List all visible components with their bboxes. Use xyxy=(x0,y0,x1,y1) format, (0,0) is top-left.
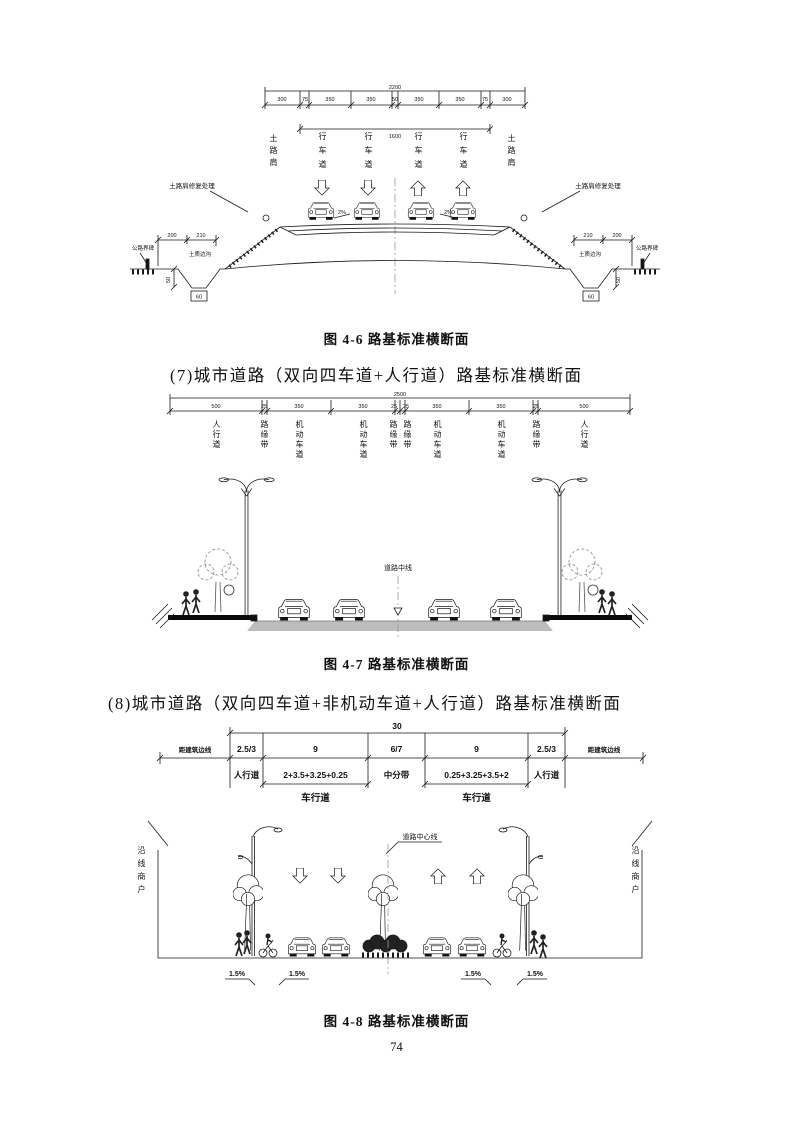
label-roadside-shops: 沿线商户 xyxy=(136,846,147,898)
median-bushes xyxy=(362,935,412,955)
pedestrian-icon xyxy=(530,931,538,954)
traffic-arrows xyxy=(315,180,470,196)
label-lane: 行车道 xyxy=(413,132,424,174)
dim-label: 25 xyxy=(391,404,397,410)
label-shoulder: 土路肩 xyxy=(506,134,517,170)
figure-4-7: 2500 500 25 350 350 25 25 350 350 25 500 xyxy=(140,388,660,646)
slope-label: 1.5% xyxy=(527,971,544,978)
row-label: 人行道 xyxy=(234,770,260,780)
label-roadside-shops: 沿线商户 xyxy=(630,846,641,898)
dim-label: 350 xyxy=(325,97,334,103)
page-number: 74 xyxy=(0,1040,793,1055)
row-label: 中分带 xyxy=(384,770,410,780)
tree-icon xyxy=(562,549,602,612)
car-icon xyxy=(334,599,365,620)
car-icon xyxy=(423,938,450,956)
centerline-label: 道路中线 xyxy=(384,563,412,572)
arrow-down-icon xyxy=(331,868,345,883)
ditch-dim: 210 xyxy=(583,233,592,239)
boundary-lines xyxy=(148,821,652,958)
dim-label: 300 xyxy=(502,97,511,103)
arrow-up-icon xyxy=(431,869,445,884)
dimension-table: 30 距建筑边线 2.5/3 9 6/7 9 2.5/3 距建筑边线 人行道 2… xyxy=(157,721,646,804)
dim-inner: 1600 xyxy=(389,134,401,140)
cyclist-icon xyxy=(259,934,277,957)
dim-label: 350 xyxy=(294,404,303,410)
label-lane: 行车道 xyxy=(458,132,469,174)
figure-4-8: 30 距建筑边线 2.5/3 9 6/7 9 2.5/3 距建筑边线 人行道 2… xyxy=(130,718,670,1010)
car-icon xyxy=(354,202,380,219)
figure-caption: 图 4-7 路基标准横断面 xyxy=(0,653,793,673)
ditch-width: 60 xyxy=(196,295,202,301)
car-icon xyxy=(450,202,476,219)
dimension-band: 2200 300 75 350 350 50 350 350 75 300 16… xyxy=(262,85,528,140)
car-icon xyxy=(288,938,315,956)
label-curb-strip: 路缘带 xyxy=(531,420,542,450)
arrow-down-icon xyxy=(315,180,329,195)
dim-label: 500 xyxy=(579,404,588,410)
slope-note: 土路肩修复处理 xyxy=(169,181,215,190)
slope-label: 1.5% xyxy=(229,971,246,978)
label-lane: 行车道 xyxy=(317,132,328,174)
dim-label: 25 xyxy=(533,404,539,410)
label-motor-lane: 机动车道 xyxy=(496,420,507,460)
carriageway-label: 车行道 xyxy=(301,792,330,804)
ditch-dim: 210 xyxy=(196,233,205,239)
pedestrian-icon xyxy=(598,590,606,613)
label-sidewalk: 人行道 xyxy=(579,420,590,450)
label-curb-strip: 路缘带 xyxy=(388,420,399,450)
pedestrian-icon xyxy=(182,592,190,615)
pedestrian-icon xyxy=(608,592,616,615)
tree-icon xyxy=(198,549,238,612)
dim-label: 350 xyxy=(414,97,423,103)
row-label: 2+3.5+3.25+0.25 xyxy=(283,770,348,780)
label-curb-strip: 路缘带 xyxy=(402,420,413,450)
dim-label: 500 xyxy=(211,404,220,410)
boundary-note: 公路界碑 xyxy=(132,244,155,252)
arrow-down-icon xyxy=(361,180,375,195)
cyclist-icon xyxy=(493,934,511,957)
car-icon xyxy=(429,599,460,620)
centerline-label: 道路中心线 xyxy=(403,832,438,841)
pedestrian-icon xyxy=(243,931,251,954)
row-label: 人行道 xyxy=(534,770,560,780)
slope-label: 1.5% xyxy=(465,971,482,978)
label-curb-strip: 路缘带 xyxy=(259,420,270,450)
dim-label: 75 xyxy=(302,97,308,103)
dim-label: 350 xyxy=(432,404,441,410)
carriageway-label: 车行道 xyxy=(462,792,491,804)
slope-label: 1.5% xyxy=(289,971,306,978)
dim-label: 9 xyxy=(474,744,479,754)
label-sidewalk: 人行道 xyxy=(211,420,222,450)
ditch-depth: 50 xyxy=(616,277,622,283)
ditch-dim: 200 xyxy=(612,233,621,239)
arrow-up-icon xyxy=(470,869,484,884)
label-motor-lane: 机动车道 xyxy=(432,420,443,460)
dim-label: 6/7 xyxy=(391,744,403,754)
car-icon xyxy=(308,202,334,219)
boundary-note: 公路界碑 xyxy=(636,244,659,252)
ditch-dim: 200 xyxy=(167,233,176,239)
street-lamp-icon xyxy=(532,478,587,616)
fig-4-6-drawing: 2200 300 75 350 350 50 350 350 75 300 16… xyxy=(130,82,665,322)
slope-note: 土路肩修复处理 xyxy=(575,181,621,190)
ditch-depth: 50 xyxy=(166,277,172,283)
arrow-down-icon xyxy=(293,868,307,883)
section-heading-8: (8)城市道路（双向四车道+非机动车道+人行道）路基标准横断面 xyxy=(108,690,621,714)
document-page: 2200 300 75 350 350 50 350 350 75 300 16… xyxy=(0,0,793,1122)
pedestrian-icon xyxy=(539,935,547,958)
street-lamp-icon xyxy=(219,478,274,616)
dim-label: 9 xyxy=(313,744,318,754)
dim-total: 30 xyxy=(392,721,402,731)
figure-caption: 图 4-6 路基标准横断面 xyxy=(0,328,793,348)
row-label: 0.25+3.25+3.5+2 xyxy=(444,770,509,780)
section-heading-7: (7)城市道路（双向四车道+人行道）路基标准横断面 xyxy=(170,362,583,386)
dim-total: 2200 xyxy=(389,85,401,91)
dim-label: 300 xyxy=(277,97,286,103)
fig-4-8-drawing: 30 距建筑边线 2.5/3 9 6/7 9 2.5/3 距建筑边线 人行道 2… xyxy=(130,718,670,1010)
pedestrian-icon xyxy=(235,933,243,956)
figure-4-6: 2200 300 75 350 350 50 350 350 75 300 16… xyxy=(130,82,665,322)
label-lane: 行车道 xyxy=(363,132,374,174)
slope-labels: 1.5% 1.5% 1.5% 1.5% xyxy=(225,971,547,985)
dim-label: 2.5/3 xyxy=(237,744,256,754)
car-icon xyxy=(408,202,434,219)
dimension-band: 2500 500 25 350 350 25 25 350 350 25 500 xyxy=(167,392,633,415)
ditch-width: 60 xyxy=(588,295,594,301)
dim-label: 350 xyxy=(358,404,367,410)
arrow-up-icon xyxy=(456,181,470,196)
car-icon xyxy=(458,938,485,956)
right-ditch: 210 200 50 60 土质边沟 公路界碑 xyxy=(565,233,660,301)
dim-label: 25 xyxy=(403,404,409,410)
label-motor-lane: 机动车道 xyxy=(358,420,369,460)
left-ditch: 200 210 50 60 土质边沟 公路界碑 xyxy=(130,233,225,301)
building-line-label: 距建筑边线 xyxy=(588,745,621,754)
dim-label: 2.5/3 xyxy=(537,744,556,754)
dim-label: 50 xyxy=(392,97,398,103)
dim-label: 350 xyxy=(496,404,505,410)
ditch-note: 土质边沟 xyxy=(579,250,602,258)
ditch-note: 土质边沟 xyxy=(189,250,212,258)
dim-label: 350 xyxy=(455,97,464,103)
dim-label: 350 xyxy=(366,97,375,103)
label-shoulder: 土路肩 xyxy=(268,134,279,170)
car-icon xyxy=(279,599,310,620)
pedestrian-icon xyxy=(192,590,200,613)
arrow-up-icon xyxy=(411,181,425,196)
label-motor-lane: 机动车道 xyxy=(294,420,305,460)
car-icon xyxy=(322,938,349,956)
dim-label: 75 xyxy=(482,97,488,103)
dim-total: 2500 xyxy=(394,392,406,398)
car-icon xyxy=(491,599,522,620)
dim-label: 25 xyxy=(261,404,267,410)
figure-caption: 图 4-8 路基标准横断面 xyxy=(0,1010,793,1030)
building-line-label: 距建筑边线 xyxy=(179,745,212,754)
